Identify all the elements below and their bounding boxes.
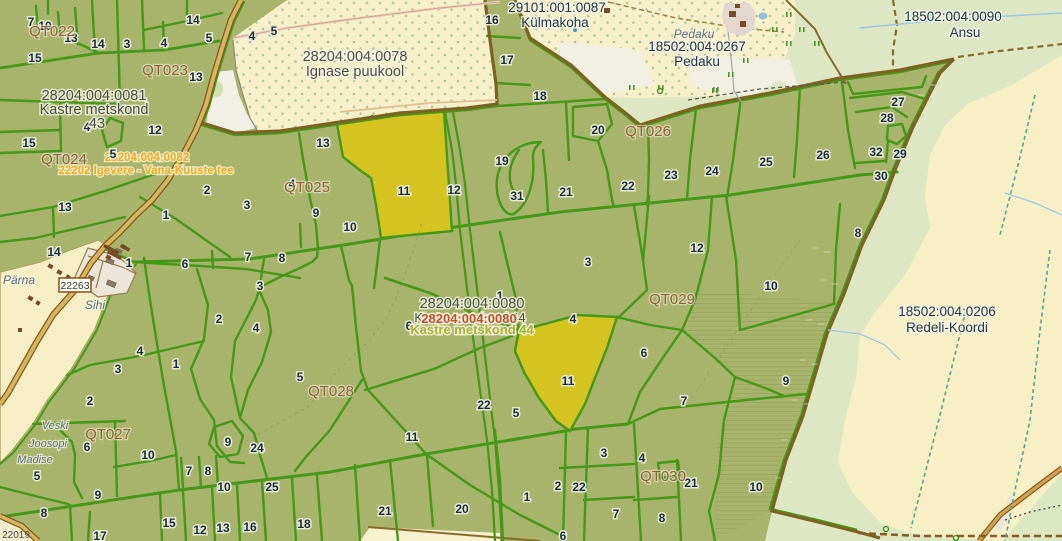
svg-text:9: 9: [95, 488, 102, 502]
svg-text:1: 1: [524, 490, 531, 504]
svg-text:Joosopi: Joosopi: [28, 438, 67, 450]
svg-text:29101:001:0087: 29101:001:0087: [508, 0, 606, 15]
svg-text:22019: 22019: [2, 530, 30, 541]
svg-text:10: 10: [141, 448, 155, 462]
svg-text:7: 7: [681, 394, 688, 408]
svg-text:Pärna: Pärna: [3, 273, 35, 287]
svg-text:8: 8: [855, 226, 862, 240]
svg-text:QT025: QT025: [284, 179, 330, 196]
svg-text:22263: 22263: [60, 280, 89, 292]
svg-text:15: 15: [22, 136, 36, 150]
svg-text:21: 21: [684, 476, 698, 490]
svg-text:13: 13: [58, 200, 72, 214]
svg-text:11: 11: [406, 430, 419, 444]
svg-text:Ignase puukool: Ignase puukool: [306, 64, 404, 80]
svg-text:17: 17: [93, 529, 107, 541]
svg-text:43: 43: [89, 116, 105, 132]
svg-text:5: 5: [34, 469, 41, 483]
svg-text:Madise: Madise: [17, 454, 52, 466]
svg-text:1: 1: [173, 357, 180, 371]
svg-text:23: 23: [664, 168, 678, 182]
svg-text:8: 8: [279, 251, 286, 265]
svg-text:12: 12: [193, 523, 207, 537]
svg-text:4: 4: [570, 312, 577, 326]
svg-text:7: 7: [186, 464, 193, 478]
svg-text:25: 25: [265, 480, 279, 494]
svg-text:QT022: QT022: [29, 23, 75, 40]
svg-text:12: 12: [447, 183, 461, 197]
svg-text:17: 17: [500, 53, 514, 67]
svg-text:Redeli-Koordi: Redeli-Koordi: [906, 320, 988, 335]
svg-text:10: 10: [749, 480, 763, 494]
svg-text:12: 12: [690, 241, 704, 255]
svg-text:7: 7: [245, 250, 252, 264]
svg-text:Veski: Veski: [42, 420, 69, 432]
svg-text:9: 9: [313, 206, 320, 220]
svg-text:QT029: QT029: [649, 291, 695, 308]
svg-text:9: 9: [783, 374, 790, 388]
svg-text:4: 4: [639, 451, 646, 465]
svg-text:30: 30: [874, 169, 888, 183]
svg-text:22: 22: [621, 179, 635, 193]
svg-text:32: 32: [869, 145, 883, 159]
svg-text:3: 3: [601, 446, 608, 460]
svg-text:6: 6: [641, 346, 648, 360]
svg-text:8: 8: [205, 464, 212, 478]
svg-text:4: 4: [249, 29, 256, 43]
svg-text:18: 18: [533, 89, 547, 103]
svg-text:Pedaku: Pedaku: [674, 27, 715, 41]
svg-text:Külmakoha: Külmakoha: [521, 15, 589, 30]
svg-text:Sihi: Sihi: [85, 298, 105, 312]
svg-text:28: 28: [880, 111, 894, 125]
svg-text:29: 29: [893, 147, 907, 161]
svg-text:14: 14: [186, 13, 200, 27]
svg-text:14: 14: [91, 37, 105, 51]
svg-text:1: 1: [126, 256, 133, 270]
svg-text:22: 22: [572, 480, 586, 494]
svg-text:2: 2: [555, 479, 562, 493]
svg-text:5: 5: [297, 370, 304, 384]
svg-text:20: 20: [455, 502, 469, 516]
svg-text:QT023: QT023: [142, 62, 188, 79]
svg-text:4: 4: [137, 344, 144, 358]
svg-text:25: 25: [759, 155, 773, 169]
svg-text:24: 24: [250, 441, 264, 455]
svg-text:27: 27: [891, 95, 905, 109]
svg-text:20: 20: [591, 123, 605, 137]
svg-text:5: 5: [513, 406, 520, 420]
svg-text:6: 6: [560, 529, 567, 541]
svg-text:3: 3: [124, 37, 131, 51]
svg-text:9: 9: [225, 435, 232, 449]
svg-text:Kastre metskond 44: Kastre metskond 44: [410, 322, 534, 337]
svg-text:2: 2: [216, 312, 223, 326]
svg-text:22: 22: [477, 398, 491, 412]
svg-text:28204:004:0080: 28204:004:0080: [420, 296, 525, 312]
svg-text:QT027: QT027: [85, 426, 131, 443]
svg-text:2: 2: [204, 183, 211, 197]
svg-text:10: 10: [764, 279, 778, 293]
svg-text:14: 14: [47, 245, 61, 259]
svg-text:4: 4: [253, 321, 260, 335]
svg-text:Pedaku: Pedaku: [674, 54, 720, 69]
svg-text:6: 6: [182, 257, 189, 271]
svg-text:26: 26: [816, 148, 830, 162]
svg-text:QT028: QT028: [308, 383, 354, 400]
svg-text:18502:004:0090: 18502:004:0090: [904, 9, 1002, 24]
svg-text:8: 8: [659, 511, 666, 525]
svg-text:12: 12: [148, 123, 162, 137]
svg-text:18: 18: [297, 517, 311, 531]
svg-text:21: 21: [378, 504, 392, 518]
svg-text:31: 31: [510, 189, 524, 203]
svg-text:15: 15: [28, 51, 42, 65]
svg-text:3: 3: [244, 198, 251, 212]
svg-text:3: 3: [585, 255, 592, 269]
svg-text:16: 16: [243, 520, 257, 534]
svg-text:5: 5: [110, 147, 117, 161]
svg-text:16: 16: [485, 13, 499, 27]
svg-text:10: 10: [343, 220, 357, 234]
svg-text:13: 13: [189, 70, 203, 84]
svg-text:3: 3: [257, 279, 264, 293]
svg-text:19: 19: [495, 154, 509, 168]
svg-text:QT030: QT030: [640, 468, 686, 485]
svg-text:7: 7: [613, 507, 620, 521]
svg-text:4: 4: [161, 36, 168, 50]
svg-text:18502:004:0206: 18502:004:0206: [898, 304, 996, 319]
svg-text:24: 24: [705, 164, 719, 178]
svg-text:QT026: QT026: [625, 123, 671, 140]
svg-text:21: 21: [559, 185, 573, 199]
svg-text:13: 13: [316, 136, 330, 150]
svg-text:28204:004:0082: 28204:004:0082: [105, 152, 189, 164]
svg-text:5: 5: [271, 24, 278, 38]
svg-text:QT024: QT024: [41, 151, 87, 168]
svg-text:28204:004:0078: 28204:004:0078: [303, 49, 408, 65]
svg-text:10: 10: [217, 480, 231, 494]
svg-text:3: 3: [115, 362, 122, 376]
svg-text:8: 8: [41, 506, 48, 520]
svg-text:Ansu: Ansu: [950, 25, 981, 40]
svg-text:18502:004:0267: 18502:004:0267: [648, 39, 746, 54]
svg-text:1: 1: [163, 208, 170, 222]
svg-text:13: 13: [216, 521, 230, 535]
svg-text:11: 11: [562, 374, 575, 388]
svg-text:5: 5: [206, 31, 213, 45]
svg-text:2: 2: [87, 394, 94, 408]
svg-text:15: 15: [162, 516, 176, 530]
svg-text:11: 11: [398, 184, 411, 198]
